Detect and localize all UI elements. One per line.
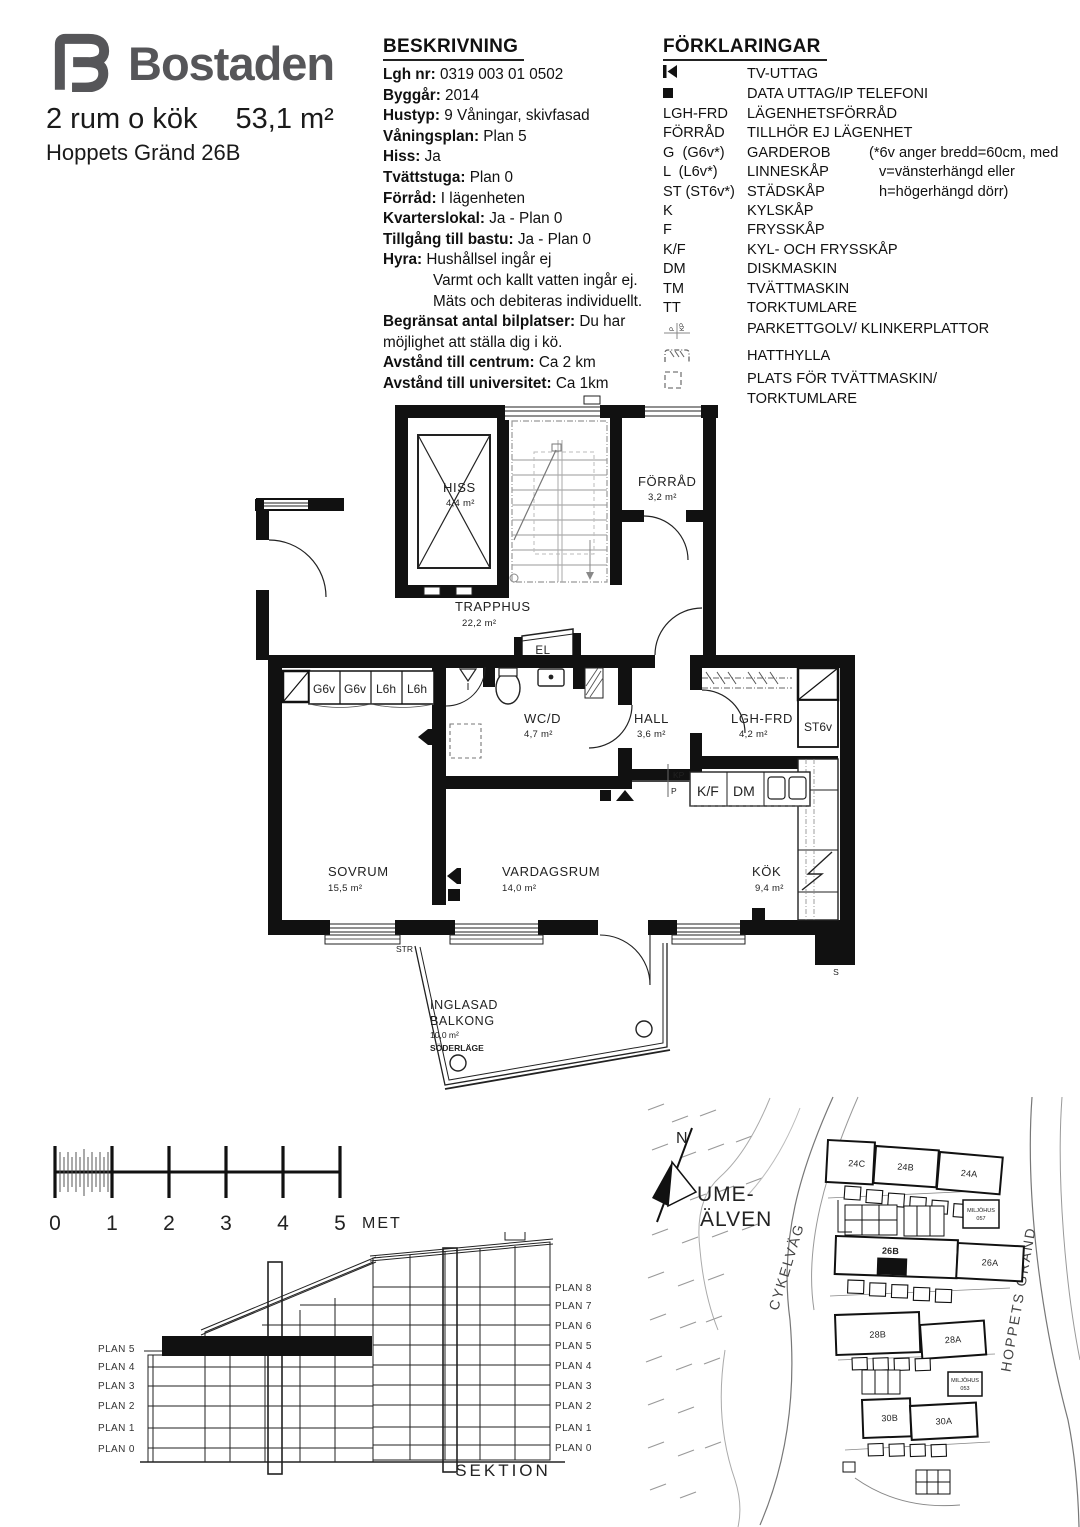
balcony-label-1: INGLASAD	[430, 998, 498, 1012]
svg-text:24C: 24C	[848, 1158, 866, 1169]
data-outlet-icon	[600, 790, 611, 801]
yard-structures	[862, 1370, 900, 1394]
room-label-hiss: HISS	[443, 480, 476, 495]
svg-text:26B: 26B	[882, 1246, 900, 1257]
legend-row: L (L6v*)LINNESKÅPv=vänsterhängd eller	[663, 163, 1079, 182]
building-24b: 24B	[873, 1146, 938, 1187]
site-map: N UME- ÄLVEN CYKELVÄG HOPPETS GRÄND 24C …	[640, 1095, 1080, 1527]
description-row: Mäts och debiteras individuellt.	[383, 292, 665, 313]
building-30a: 30A	[910, 1403, 978, 1440]
legend-row: K/FKYL- OCH FRYSSKÅP	[663, 241, 1079, 260]
river	[646, 1098, 800, 1527]
door-arc	[655, 608, 702, 655]
kitchen-counter: K/F DM	[690, 759, 838, 920]
legend-row: TTTORKTUMLARE	[663, 299, 1079, 318]
legend-row: TV-UTTAG	[663, 65, 1079, 85]
wall-label-str: STR	[396, 944, 413, 954]
building-26b: 26B	[835, 1236, 958, 1278]
svg-text:30B: 30B	[881, 1413, 898, 1424]
north-arrow-icon	[652, 1128, 696, 1222]
legend-row: FFRYSSKÅP	[663, 221, 1079, 240]
door-arc	[269, 540, 326, 597]
building-26a: 26A	[956, 1243, 1024, 1281]
yard-structures	[843, 1462, 960, 1506]
room-label-sovrum: SOVRUM	[328, 864, 389, 879]
legend-row: DATA UTTAG/IP TELEFONI	[663, 85, 1079, 105]
legend-row: FÖRRÅDTILLHÖR EJ LÄGENHET	[663, 124, 1079, 143]
svg-text:26A: 26A	[981, 1257, 998, 1268]
svg-text:P: P	[671, 786, 677, 796]
wardrobe-label: G6v	[313, 682, 335, 696]
floor-label: PLAN 6	[555, 1321, 592, 1332]
description-row: Hyra: Hushållsel ingår ej	[383, 250, 665, 271]
scale-unit: METER	[362, 1215, 400, 1232]
tv-outlet-icon	[663, 65, 677, 84]
sink-icon	[768, 777, 785, 799]
building-28a: 28A	[920, 1321, 986, 1359]
door-arc	[644, 516, 688, 560]
description-row: Begränsat antal bilplatser: Du har möjli…	[383, 312, 665, 353]
floor-label: PLAN 2	[98, 1401, 135, 1412]
description-row: Lgh nr: 0319 003 01 0502	[383, 65, 665, 86]
bostaden-logo-icon	[46, 30, 118, 97]
floor-marker-icon: PKP	[663, 320, 691, 346]
apartment-type: 2 rum o kök	[46, 103, 198, 135]
room-label-st6v: ST6v	[804, 720, 832, 734]
scale-bar: 0 1 2 3 4 5 METER	[40, 1102, 400, 1237]
window	[645, 403, 701, 420]
svg-text:MILJÖHUS: MILJÖHUS	[967, 1207, 995, 1214]
cleaning-closet: ST6v	[798, 668, 838, 747]
apartment-title: 2 rum o kök53,1 m²	[46, 103, 334, 136]
beskrivning-panel: BESKRIVNING Lgh nr: 0319 003 01 0502 Byg…	[383, 36, 665, 395]
svg-text:057: 057	[976, 1216, 985, 1222]
beskrivning-title: BESKRIVNING	[383, 36, 524, 61]
room-area-wcd: 4,7 m²	[524, 729, 553, 740]
description-row: Byggår: 2014	[383, 86, 665, 107]
staircase	[510, 421, 607, 582]
tv-outlet-icon	[616, 790, 634, 801]
wardrobe-label: L6h	[376, 682, 396, 696]
floor-label: PLAN 5	[98, 1344, 135, 1355]
tv-outlet-icon	[447, 868, 461, 884]
apartment: S STR	[268, 655, 855, 977]
apartment-area: 53,1 m²	[236, 103, 334, 135]
floor-label: PLAN 7	[555, 1301, 592, 1312]
floor-label: PLAN 0	[555, 1443, 592, 1454]
room-label-trapphus: TRAPPHUS	[455, 599, 531, 614]
svg-text:28A: 28A	[944, 1334, 961, 1345]
balcony-label-2: BALKONG	[430, 1014, 495, 1028]
data-outlet-icon	[448, 889, 460, 901]
wardrobes: G6v G6v L6h L6h	[283, 671, 434, 708]
description-row: Avstånd till universitet: Ca 1km	[383, 374, 665, 395]
door-arc	[589, 705, 632, 748]
window	[325, 924, 400, 944]
room-area-hall: 3,6 m²	[637, 729, 666, 740]
brand-name: Bostaden	[128, 36, 334, 91]
sektion-title: SEKTION	[455, 1461, 551, 1480]
yard-structures	[838, 1200, 944, 1236]
svg-text:24B: 24B	[897, 1162, 914, 1173]
wardrobe-label: G6v	[344, 682, 366, 696]
room-area-forrad: 3,2 m²	[648, 492, 677, 503]
floor-label: PLAN 4	[98, 1362, 135, 1373]
svg-text:KP: KP	[673, 770, 685, 780]
forklaringar-title: FÖRKLARINGAR	[663, 36, 827, 61]
description-row: Avstånd till centrum: Ca 2 km	[383, 353, 665, 374]
elevator: HISS 4,4 m²	[418, 435, 490, 595]
washer-place	[450, 724, 481, 758]
description-row: Hustyp: 9 Våningar, skivfasad	[383, 106, 665, 127]
room-label-kok: KÖK	[752, 864, 781, 879]
room-label-hall: HALL	[634, 711, 669, 726]
legend-row: ST (ST6v*)STÄDSKÅPh=högerhängd dörr)	[663, 183, 1079, 202]
description-row: Kvarterslokal: Ja - Plan 0	[383, 209, 665, 230]
legend-row: KKYLSKÅP	[663, 202, 1079, 221]
sink-icon	[789, 777, 806, 799]
highlighted-floor	[162, 1336, 372, 1356]
room-label-wcd: WC/D	[524, 711, 561, 726]
building-28b: 28B	[835, 1312, 920, 1355]
room-area-vardagsrum: 14,0 m²	[502, 883, 536, 894]
description-row: Varmt och kallt vatten ingår ej.	[383, 271, 665, 292]
room-area-trapphus: 22,2 m²	[462, 618, 496, 629]
svg-text:053: 053	[960, 1386, 969, 1392]
wall-label-s: S	[833, 967, 839, 977]
apartment-storage: LGH-FRD 4,2 m²	[702, 672, 793, 740]
floor-label: PLAN 2	[555, 1401, 592, 1412]
floor-label: PLAN 1	[98, 1423, 135, 1434]
balcony: INGLASAD BALKONG 10,0 m² SÖDERLÄGE	[415, 935, 670, 1089]
legend-row: PKP PARKETTGOLV/ KLINKERPLATTOR	[663, 320, 1079, 346]
window	[450, 924, 543, 944]
floor-label: PLAN 3	[98, 1381, 135, 1392]
room-area-sovrum: 15,5 m²	[328, 883, 362, 894]
room-area-lghfrd: 4,2 m²	[739, 729, 768, 740]
floor-label: PLAN 4	[555, 1361, 592, 1372]
description-row: Tillgång till bastu: Ja - Plan 0	[383, 230, 665, 251]
tv-outlet-icon	[418, 729, 432, 745]
balcony-area: 10,0 m²	[430, 1030, 459, 1040]
legend-row: DMDISKMASKIN	[663, 260, 1079, 279]
label-kf: K/F	[697, 783, 719, 799]
toilet-icon	[496, 672, 520, 704]
legend-row: TMTVÄTTMASKIN	[663, 280, 1079, 299]
hat-shelf-icon	[663, 347, 691, 370]
balcony-row	[847, 1280, 952, 1303]
el-closet: EL	[514, 629, 581, 659]
building-24a: 24A	[937, 1152, 1003, 1194]
legend-row: G (G6v*)GARDEROB(*6v anger bredd=60cm, m…	[663, 144, 1079, 163]
highlighted-building	[877, 1257, 908, 1275]
room-area-hiss: 4,4 m²	[446, 498, 475, 509]
label-dm: DM	[733, 783, 755, 799]
building-miljohus-057: MILJÖHUS 057	[963, 1200, 999, 1228]
apartment-address: Hoppets Gränd 26B	[46, 140, 334, 166]
data-outlet-icon	[752, 908, 765, 921]
description-row: Våningsplan: Plan 5	[383, 127, 665, 148]
balcony-row	[868, 1441, 946, 1459]
balcony-label-3: SÖDERLÄGE	[430, 1043, 484, 1053]
building-24c: 24C	[826, 1140, 875, 1184]
road-cykelvag	[760, 1097, 833, 1525]
north-label: N	[676, 1130, 688, 1147]
floorplan: EL HISS 4,4 m²	[255, 393, 861, 1095]
floor-label: PLAN 0	[98, 1444, 135, 1455]
wardrobe-label: L6h	[407, 682, 427, 696]
description-row: Tvättstuga: Plan 0	[383, 168, 665, 189]
legend-row: LGH-FRDLÄGENHETSFÖRRÅD	[663, 105, 1079, 124]
sektion-elevation: PLAN 5 PLAN 4 PLAN 3 PLAN 2 PLAN 1 PLAN …	[85, 1232, 647, 1527]
road-label-cykelvag: CYKELVÄG	[765, 1221, 807, 1312]
river-label-2: ÄLVEN	[700, 1208, 772, 1231]
floor-label: PLAN 1	[555, 1423, 592, 1434]
description-row: Förråd: I lägenheten	[383, 189, 665, 210]
legend-row: HATTHYLLA	[663, 347, 1079, 370]
data-outlet-icon	[663, 85, 674, 104]
svg-text:KP: KP	[680, 323, 686, 331]
scale-tick: 0	[49, 1212, 61, 1235]
stairwell-block: EL HISS 4,4 m²	[255, 396, 718, 660]
brand-block: Bostaden 2 rum o kök53,1 m² Hoppets Grän…	[46, 30, 334, 166]
description-row: Hiss: Ja	[383, 147, 665, 168]
building-30b: 30B	[862, 1398, 911, 1438]
room-label-vardagsrum: VARDAGSRUM	[502, 864, 600, 879]
room-label-forrad: FÖRRÅD	[638, 474, 697, 489]
door-arc	[600, 935, 650, 985]
window	[505, 396, 600, 420]
svg-text:24A: 24A	[961, 1168, 978, 1179]
svg-text:MILJÖHUS: MILJÖHUS	[951, 1377, 979, 1384]
forklaringar-panel: FÖRKLARINGAR TV-UTTAG DATA UTTAG/IP TELE…	[663, 36, 1079, 409]
room-area-kok: 9,4 m²	[755, 883, 784, 894]
svg-text:P: P	[670, 327, 676, 331]
floor-label: PLAN 8	[555, 1283, 592, 1294]
shower-icon	[460, 669, 476, 681]
bathroom: WC/D 4,7 m²	[446, 667, 632, 758]
window	[672, 924, 745, 944]
floor-label: PLAN 5	[555, 1341, 592, 1352]
floor-label: PLAN 3	[555, 1381, 592, 1392]
building-miljohus-053: MILJÖHUS 053	[948, 1372, 982, 1396]
svg-text:30A: 30A	[935, 1416, 952, 1427]
river-label-1: UME-	[697, 1183, 755, 1206]
svg-text:28B: 28B	[869, 1329, 886, 1340]
